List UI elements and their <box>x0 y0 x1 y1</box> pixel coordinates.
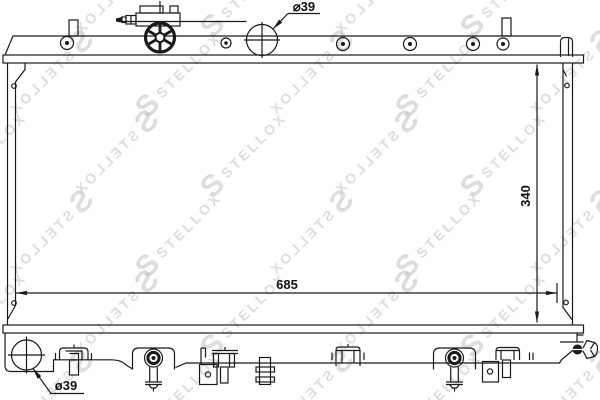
mounting-pin-right <box>434 348 476 392</box>
dimension-height-340: 340 <box>518 65 539 323</box>
height-dimension-label: 340 <box>518 185 533 207</box>
top-tank-end-cap <box>561 38 573 58</box>
pressure-valve-side-view <box>116 6 180 26</box>
filler-neck-label: ⌀39 <box>273 0 320 29</box>
dim-arrow-right <box>546 291 557 295</box>
top-tab-left <box>69 20 78 36</box>
clip-bracket <box>256 358 275 385</box>
dim-arrow-top <box>535 65 539 76</box>
filler-diameter-label: ⌀39 <box>293 0 315 14</box>
bottom-flange <box>3 325 584 333</box>
radiator-outline-svg: ⌀39 ø39 <box>0 0 600 400</box>
bottom-tank-right-end <box>560 333 584 342</box>
dim-arrow-left <box>16 291 27 295</box>
left-side-bracket <box>8 63 26 325</box>
outlet-label: ø39 <box>33 369 84 394</box>
bracket-cluster-2 <box>483 348 534 383</box>
bottom-tank-outline-right <box>176 346 579 368</box>
outlet-port <box>8 337 45 374</box>
dim-arrow-bottom <box>535 312 539 323</box>
top-flange <box>3 55 584 63</box>
dimension-width-685: 685 <box>16 277 557 303</box>
drain-cock <box>573 341 598 359</box>
radiator-technical-drawing: SSTELLOXSSTELLOXSSTELLOXSSTELLOXSSTELLOX… <box>0 0 600 400</box>
cap-top-view-wheel <box>146 23 175 52</box>
width-dimension-label: 685 <box>276 277 298 292</box>
mounting-pin-left <box>133 348 175 392</box>
construction-line <box>118 1 247 22</box>
bracket-cluster-1 <box>200 347 239 385</box>
top-tab-right <box>502 18 511 36</box>
right-side-bracket <box>563 63 573 325</box>
top-tank-bolt-holes <box>61 37 510 51</box>
outlet-diameter-label: ø39 <box>55 378 77 393</box>
top-tank <box>3 18 584 63</box>
